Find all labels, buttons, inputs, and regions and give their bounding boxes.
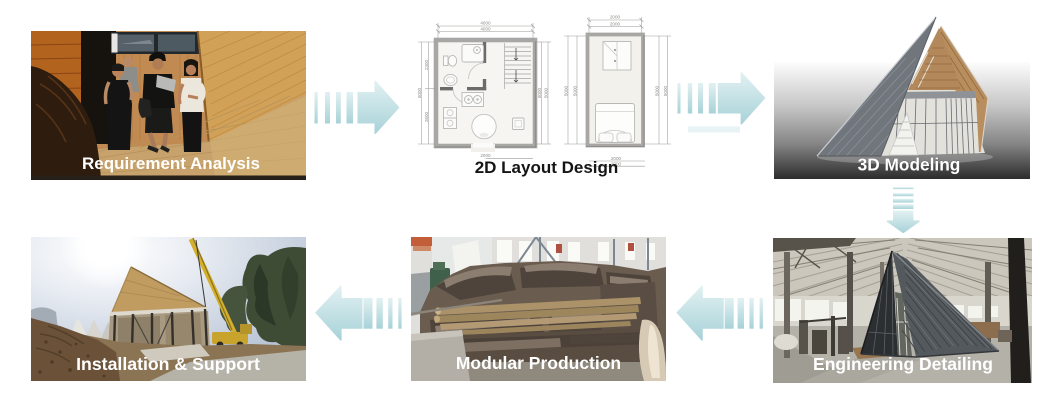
- svg-text:5000: 5000: [564, 85, 569, 96]
- svg-text:5000: 5000: [544, 87, 549, 98]
- svg-text:Installation & Support: Installation & Support: [76, 354, 260, 374]
- svg-text:2000: 2000: [610, 21, 621, 26]
- svg-text:2300: 2300: [424, 59, 429, 70]
- svg-text:Requirement Analysis: Requirement Analysis: [82, 154, 260, 173]
- svg-text:5000: 5000: [537, 87, 542, 98]
- svg-text:3D Modeling: 3D Modeling: [858, 155, 961, 175]
- svg-text:5000: 5000: [663, 85, 668, 96]
- svg-text:5000: 5000: [573, 85, 578, 96]
- svg-text:Modular Production: Modular Production: [456, 353, 621, 373]
- svg-text:2600: 2600: [424, 111, 429, 122]
- svg-text:5000: 5000: [417, 87, 422, 98]
- svg-text:5000: 5000: [655, 85, 660, 96]
- svg-text:4000: 4000: [480, 26, 491, 31]
- svg-text:Engineering Detailing: Engineering Detailing: [813, 354, 993, 374]
- svg-text:2000: 2000: [610, 15, 621, 20]
- svg-text:4000: 4000: [480, 21, 491, 26]
- svg-text:2D Layout Design: 2D Layout Design: [475, 158, 619, 177]
